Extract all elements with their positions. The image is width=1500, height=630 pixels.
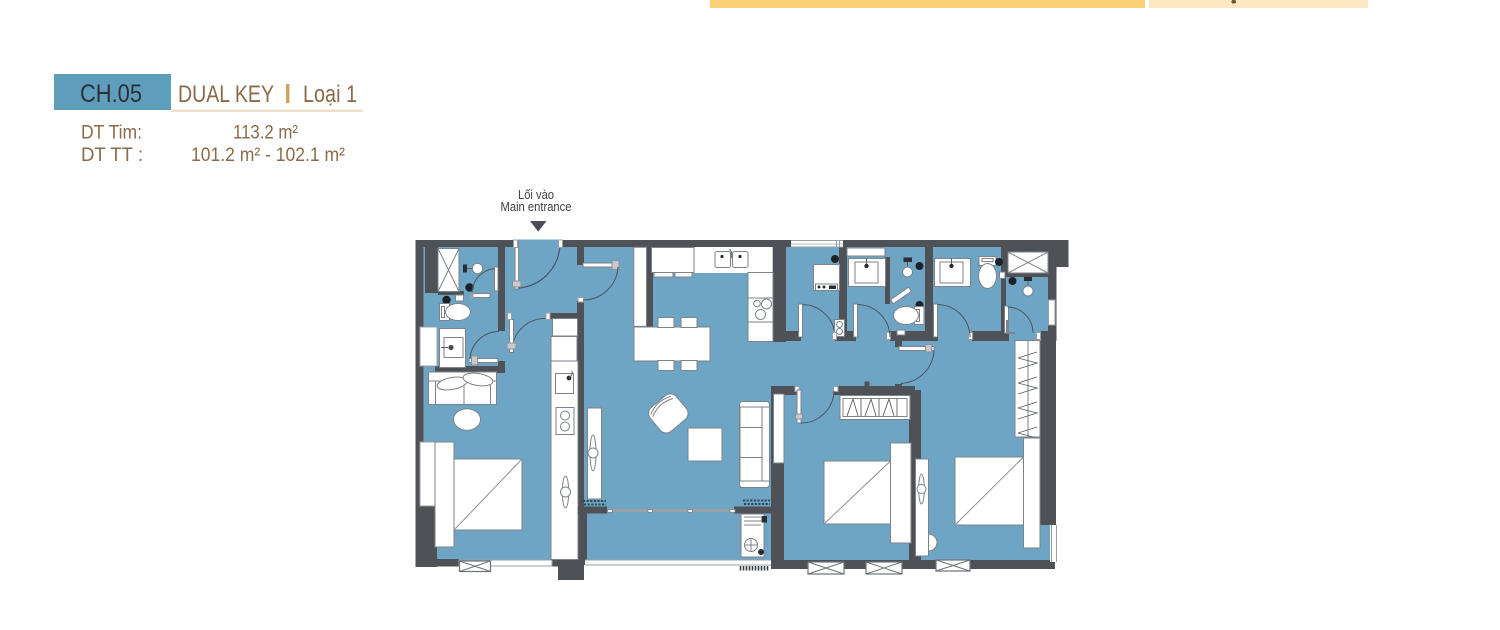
svg-text:Main entrance: Main entrance — [501, 200, 572, 214]
svg-text:101.2 m² - 102.1 m²: 101.2 m² - 102.1 m² — [191, 145, 345, 166]
svg-text:113.2 m²: 113.2 m² — [233, 123, 298, 144]
svg-text:DT Tim:: DT Tim: — [81, 123, 142, 144]
svg-text:DUAL KEY: DUAL KEY — [178, 81, 274, 108]
svg-text:DT TT :: DT TT : — [81, 145, 143, 166]
svg-text:Loại 1: Loại 1 — [303, 81, 357, 108]
svg-text:CH.05: CH.05 — [80, 80, 142, 108]
